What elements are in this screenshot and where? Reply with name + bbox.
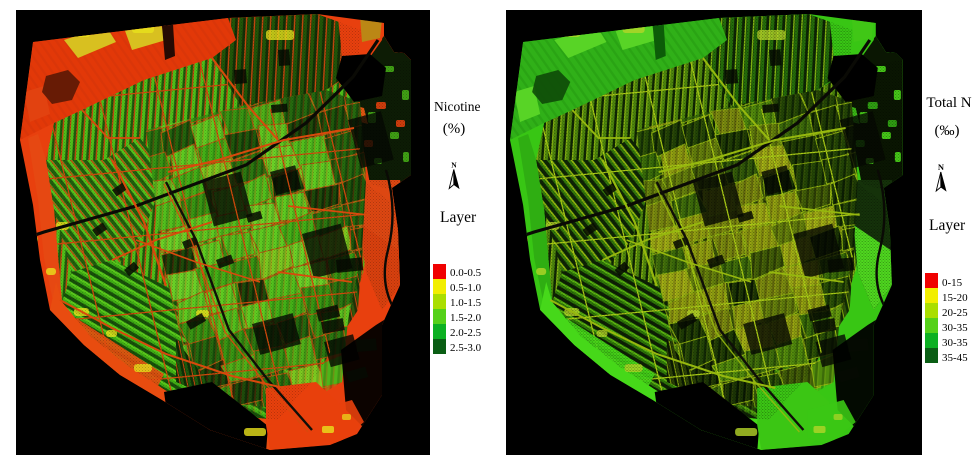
svg-text:2.0-2.5: 2.0-2.5 <box>450 327 482 339</box>
svg-text:N: N <box>938 162 945 172</box>
svg-text:0-15: 0-15 <box>942 277 963 289</box>
svg-text:1.5-2.0: 1.5-2.0 <box>450 312 482 324</box>
svg-text:1.0-1.5: 1.0-1.5 <box>450 297 482 309</box>
svg-text:20-25: 20-25 <box>942 307 968 319</box>
svg-text:15-20: 15-20 <box>942 292 968 304</box>
svg-text:30-35: 30-35 <box>942 337 968 349</box>
svg-text:2.5-3.0: 2.5-3.0 <box>450 342 482 354</box>
svg-text:N: N <box>451 161 457 170</box>
svg-text:0.0-0.5: 0.0-0.5 <box>450 267 482 279</box>
svg-text:35-45: 35-45 <box>942 352 968 364</box>
svg-text:0.5-1.0: 0.5-1.0 <box>450 282 482 294</box>
svg-text:30-35: 30-35 <box>942 322 968 334</box>
